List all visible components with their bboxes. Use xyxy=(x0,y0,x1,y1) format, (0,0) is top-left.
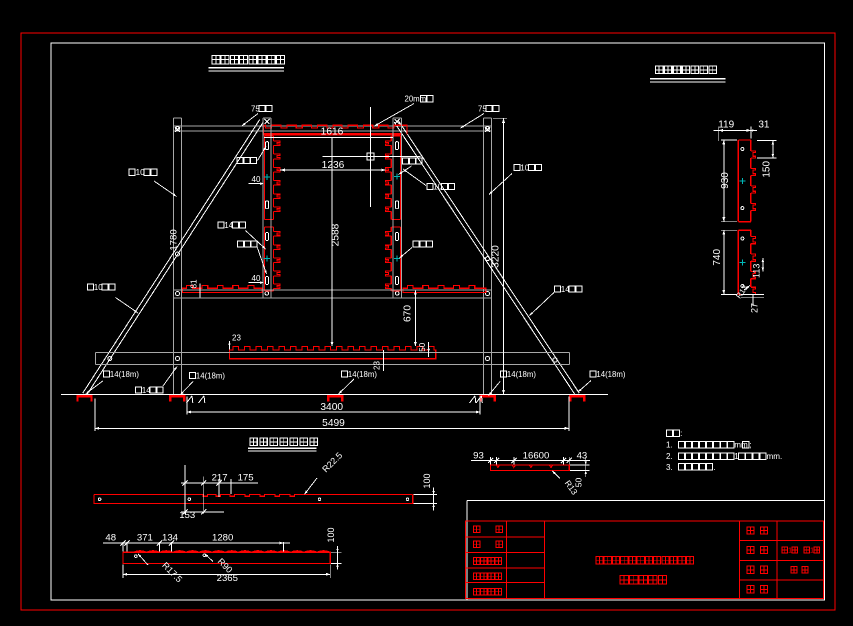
svg-text:1280: 1280 xyxy=(212,533,233,544)
svg-text:23: 23 xyxy=(232,333,241,342)
svg-text:16600: 16600 xyxy=(523,450,550,461)
svg-text:14(18m): 14(18m) xyxy=(196,371,225,380)
svg-text:150: 150 xyxy=(761,161,772,178)
svg-text:27: 27 xyxy=(750,303,760,313)
svg-text:371: 371 xyxy=(137,533,153,544)
svg-text:119: 119 xyxy=(718,120,734,131)
svg-text:740: 740 xyxy=(712,249,723,266)
svg-text:5499: 5499 xyxy=(322,418,345,429)
svg-text:100: 100 xyxy=(326,527,336,542)
svg-text:14(18m): 14(18m) xyxy=(507,370,536,379)
svg-text:2.: 2. xyxy=(666,452,673,461)
svg-text:40: 40 xyxy=(252,175,261,184)
svg-text:14(18m): 14(18m) xyxy=(348,370,377,379)
svg-text:153: 153 xyxy=(179,510,195,521)
svg-text:1780: 1780 xyxy=(169,229,180,250)
svg-text:50: 50 xyxy=(418,342,427,351)
svg-text:;: ; xyxy=(749,441,751,450)
svg-text:48: 48 xyxy=(105,533,116,544)
svg-text:113: 113 xyxy=(751,264,761,278)
svg-text:40: 40 xyxy=(252,274,261,283)
svg-text:1616: 1616 xyxy=(321,126,344,137)
svg-text:1236: 1236 xyxy=(322,160,345,171)
svg-text:23: 23 xyxy=(373,361,382,370)
svg-text:14(18m): 14(18m) xyxy=(596,370,625,379)
svg-text:930: 930 xyxy=(720,172,731,189)
svg-text:50: 50 xyxy=(573,478,583,488)
svg-text:217: 217 xyxy=(212,473,228,484)
svg-text:1.: 1. xyxy=(666,441,673,450)
svg-text:81: 81 xyxy=(189,279,198,289)
svg-text::: : xyxy=(680,429,682,438)
svg-text:.: . xyxy=(713,463,715,472)
svg-text:3220: 3220 xyxy=(490,245,501,268)
svg-text:2588: 2588 xyxy=(331,223,342,246)
svg-text:93: 93 xyxy=(473,450,484,461)
svg-text:14(18m): 14(18m) xyxy=(110,370,139,379)
svg-text:31: 31 xyxy=(758,120,770,131)
svg-text:134: 134 xyxy=(162,533,179,544)
svg-text:mm.: mm. xyxy=(767,452,783,461)
svg-text:3.: 3. xyxy=(666,463,673,472)
svg-text:100: 100 xyxy=(422,473,432,488)
svg-text:3400: 3400 xyxy=(320,402,343,413)
svg-text:175: 175 xyxy=(238,473,254,484)
svg-text:670: 670 xyxy=(403,305,414,322)
